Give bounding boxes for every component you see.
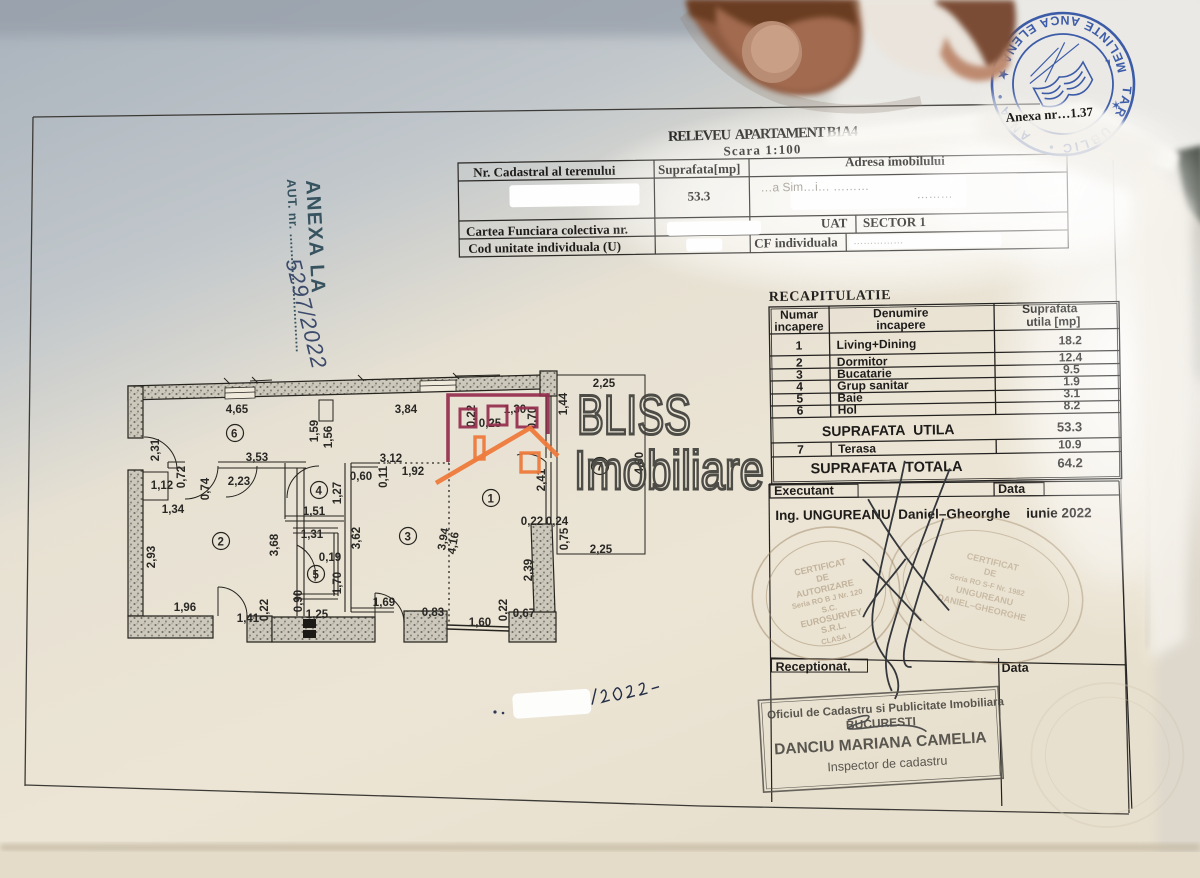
svg-text:SUPRAFATA UTILA: SUPRAFATA UTILA bbox=[822, 421, 955, 439]
svg-text:3,12: 3,12 bbox=[380, 453, 402, 465]
svg-text:1: 1 bbox=[795, 338, 802, 352]
svg-text:3,68: 3,68 bbox=[269, 533, 281, 556]
svg-text:0,22: 0,22 bbox=[259, 599, 271, 621]
svg-text:Executant: Executant bbox=[774, 483, 835, 498]
svg-text:4,65: 4,65 bbox=[226, 404, 249, 416]
svg-text:SUPRAFATA TOTALA: SUPRAFATA TOTALA bbox=[810, 459, 963, 477]
svg-text:2,23: 2,23 bbox=[228, 476, 250, 488]
svg-text:1,96: 1,96 bbox=[174, 602, 196, 614]
svg-text:2: 2 bbox=[218, 537, 224, 549]
svg-text:1,25: 1,25 bbox=[306, 609, 329, 621]
svg-text:Hol: Hol bbox=[838, 403, 858, 417]
svg-text:1,41: 1,41 bbox=[237, 613, 260, 625]
svg-text:3,62: 3,62 bbox=[351, 527, 363, 549]
svg-text:1,92: 1,92 bbox=[402, 466, 424, 478]
svg-text:✶: ✶ bbox=[1110, 97, 1122, 113]
svg-text:Nr. Cadastral al terenului: Nr. Cadastral al terenului bbox=[473, 163, 616, 180]
svg-text:1,70: 1,70 bbox=[332, 572, 344, 594]
svg-text:6: 6 bbox=[797, 403, 804, 417]
svg-text:0,75: 0,75 bbox=[559, 527, 571, 550]
svg-text:0,83: 0,83 bbox=[422, 607, 444, 619]
svg-text:Cod unitate individuala (U): Cod unitate individuala (U) bbox=[468, 239, 621, 256]
svg-text:3,53: 3,53 bbox=[246, 452, 268, 464]
svg-text:3: 3 bbox=[405, 532, 411, 544]
svg-text:0,24: 0,24 bbox=[546, 516, 569, 528]
svg-text:Imobiliare: Imobiliare bbox=[574, 439, 764, 501]
svg-text:3,84: 3,84 bbox=[395, 404, 418, 416]
svg-text:Terasa: Terasa bbox=[838, 441, 876, 456]
svg-text:1,56: 1,56 bbox=[323, 426, 335, 448]
svg-text:1,31: 1,31 bbox=[301, 529, 324, 541]
svg-text:Receptionat,: Receptionat, bbox=[776, 659, 851, 674]
svg-text:1,27: 1,27 bbox=[332, 482, 344, 504]
svg-text:0,22: 0,22 bbox=[521, 516, 543, 528]
svg-text:Data: Data bbox=[998, 482, 1026, 496]
svg-text:1,51: 1,51 bbox=[303, 506, 326, 518]
svg-text:0,60: 0,60 bbox=[350, 471, 372, 483]
svg-text:I.: I. bbox=[1104, 57, 1111, 68]
svg-text:incapere: incapere bbox=[876, 318, 926, 333]
svg-text:0,67: 0,67 bbox=[513, 608, 535, 620]
svg-text:BLISS: BLISS bbox=[577, 383, 691, 446]
svg-text:1,59: 1,59 bbox=[309, 420, 321, 442]
svg-text:1,60: 1,60 bbox=[469, 617, 491, 629]
svg-text:1: 1 bbox=[488, 494, 495, 506]
svg-text:1,69: 1,69 bbox=[373, 597, 395, 609]
svg-text:6: 6 bbox=[231, 429, 237, 441]
svg-text:0,90: 0,90 bbox=[293, 590, 305, 612]
svg-text:7: 7 bbox=[797, 442, 804, 456]
svg-text:1,12: 1,12 bbox=[151, 480, 173, 492]
svg-text:Cartea Funciara colectiva nr.: Cartea Funciara colectiva nr. bbox=[466, 221, 628, 238]
svg-text:RECAPITULATIE: RECAPITULATIE bbox=[769, 288, 891, 305]
svg-text:0,22: 0,22 bbox=[498, 599, 510, 621]
svg-text:0,11: 0,11 bbox=[378, 466, 390, 488]
svg-text:0,72: 0,72 bbox=[176, 466, 188, 488]
svg-text:2,31: 2,31 bbox=[150, 438, 162, 461]
svg-text:0,74: 0,74 bbox=[200, 477, 212, 500]
svg-text:4: 4 bbox=[316, 486, 323, 498]
svg-text:2,93: 2,93 bbox=[146, 546, 158, 568]
svg-text:0,19: 0,19 bbox=[319, 552, 341, 564]
svg-text:2,25: 2,25 bbox=[590, 544, 613, 556]
svg-text:1,34: 1,34 bbox=[162, 504, 185, 516]
svg-text:1,44: 1,44 bbox=[558, 392, 570, 415]
svg-text:5: 5 bbox=[313, 570, 320, 582]
svg-text:2,39: 2,39 bbox=[523, 559, 535, 581]
svg-text:Living+Dining: Living+Dining bbox=[836, 337, 916, 352]
svg-text:incapere: incapere bbox=[774, 319, 824, 334]
